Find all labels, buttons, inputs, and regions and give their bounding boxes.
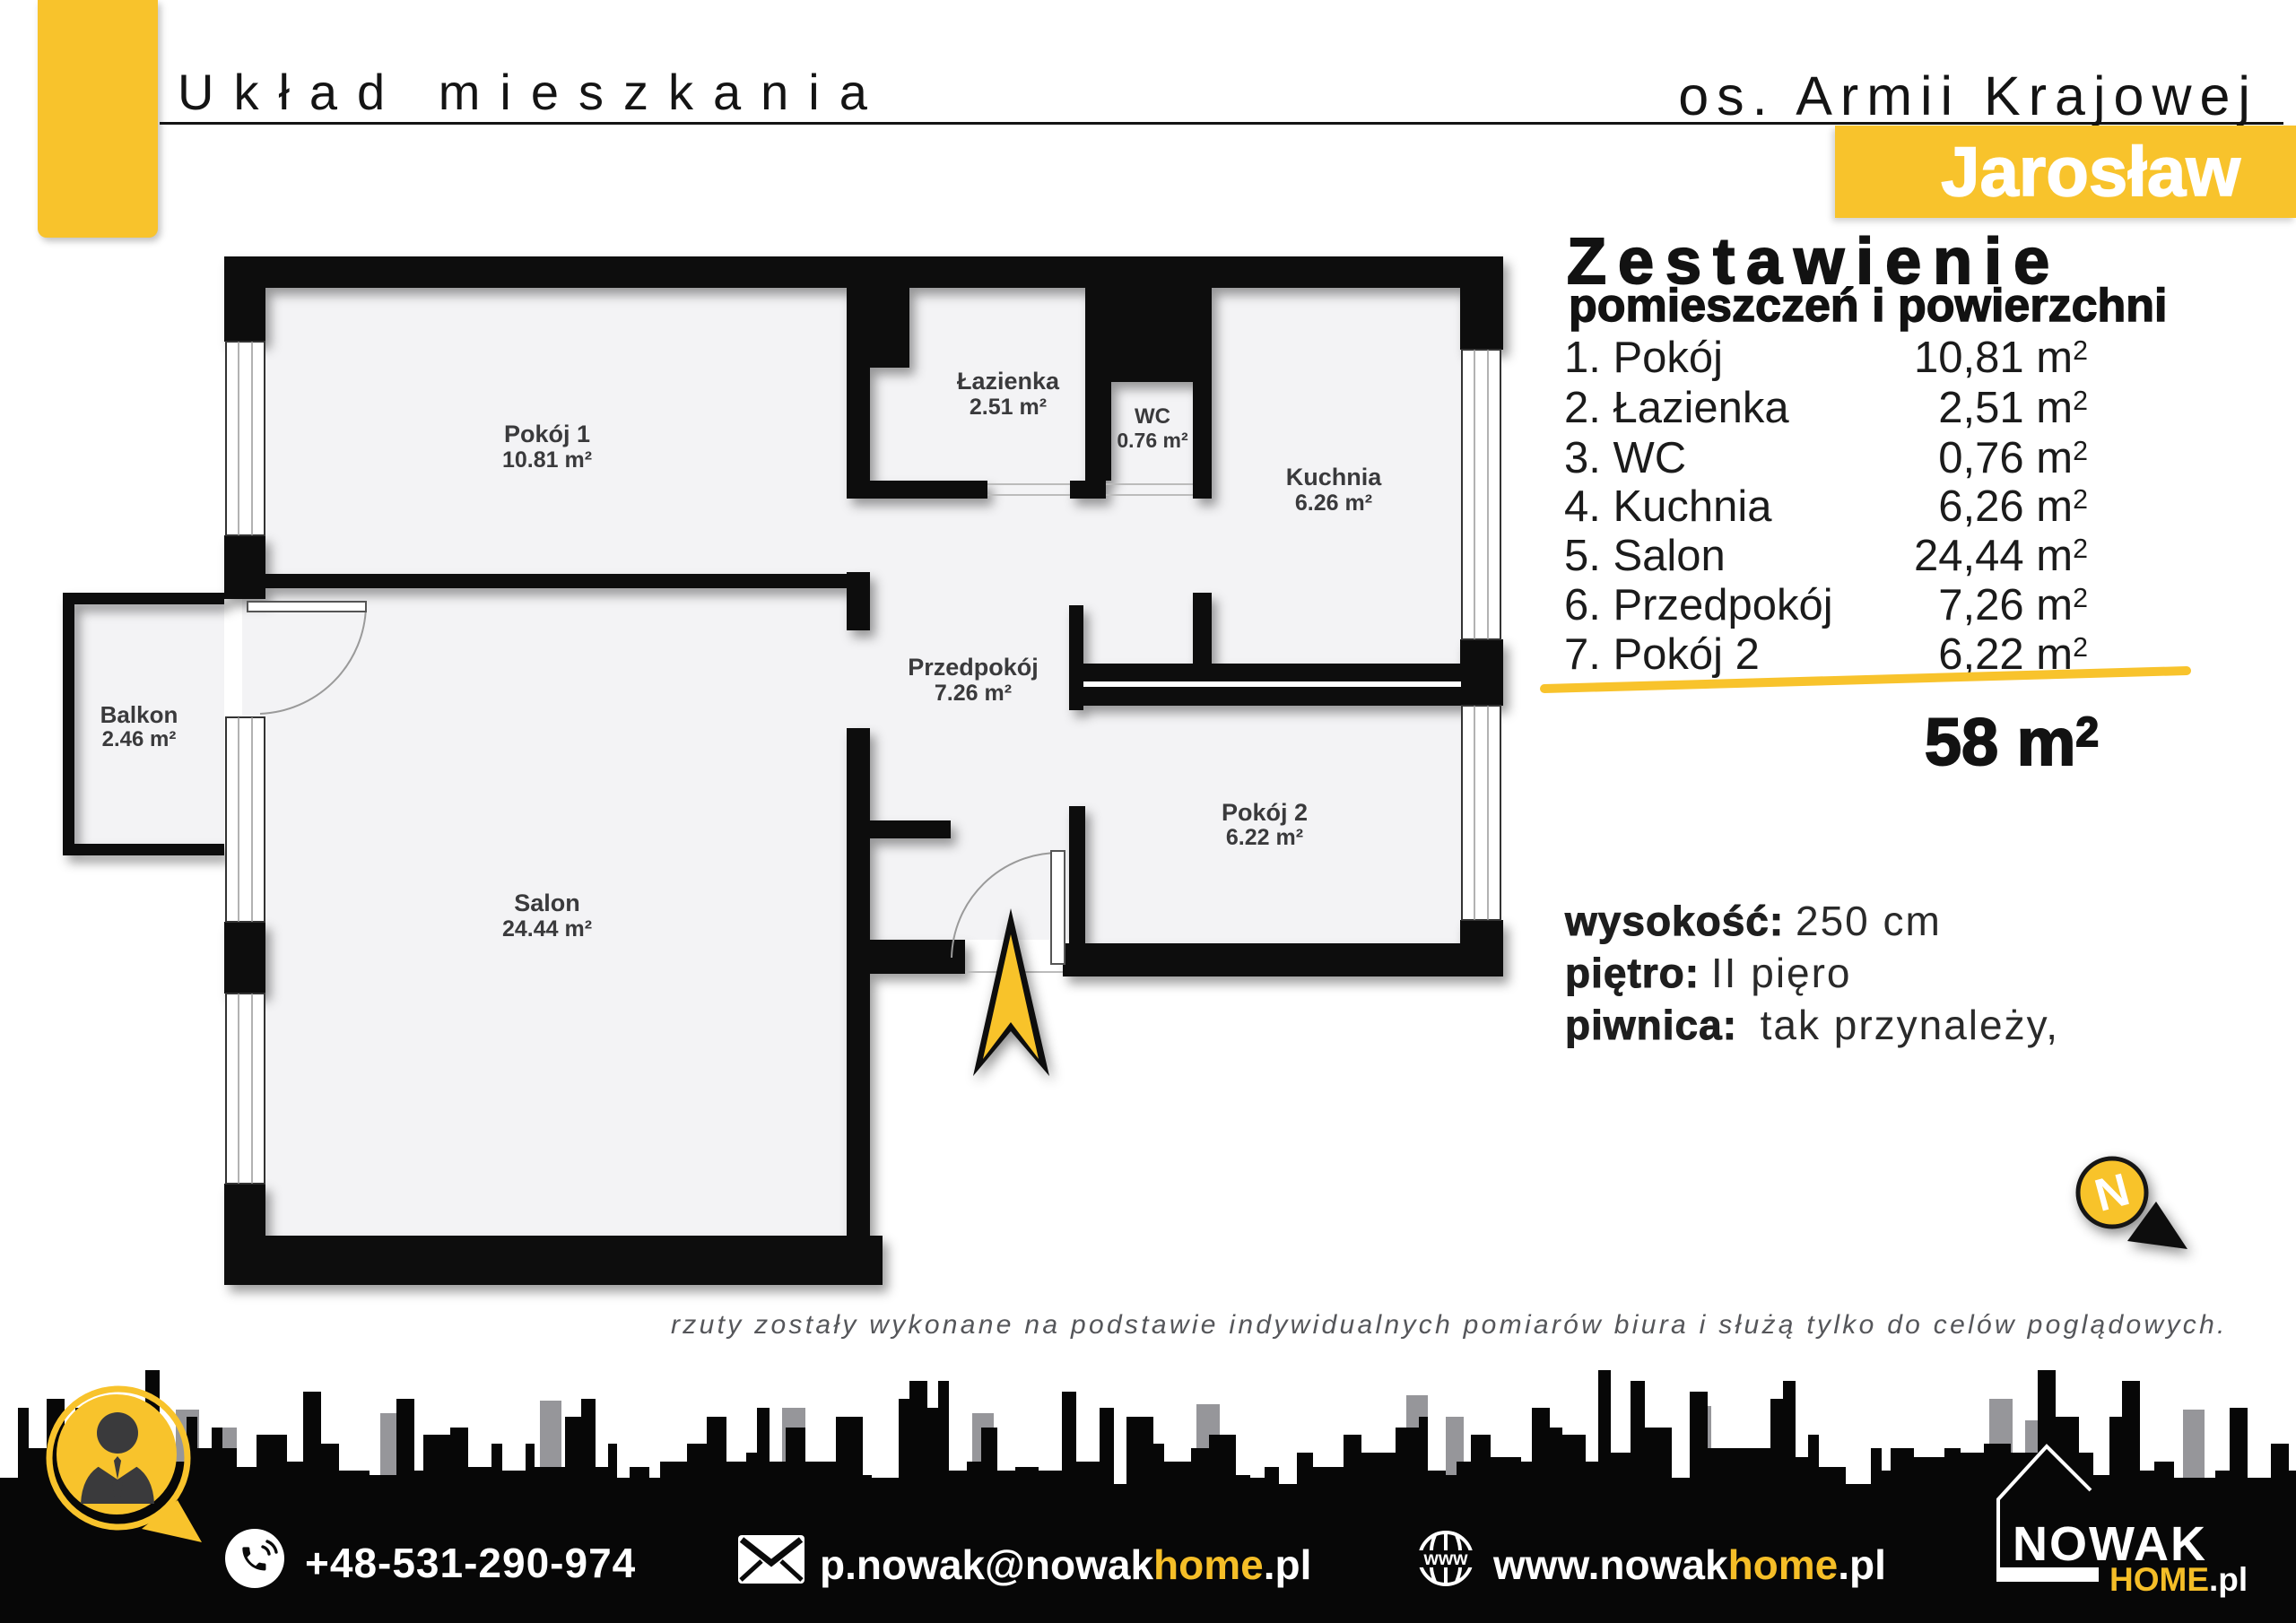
svg-text:Pokój 2: Pokój 2 (1222, 799, 1308, 826)
svg-text:0.76 m²: 0.76 m² (1117, 429, 1188, 452)
svg-text:Balkon: Balkon (100, 701, 178, 728)
svg-text:Pokój 1: Pokój 1 (504, 421, 590, 447)
svg-text:7.26 m²: 7.26 m² (935, 681, 1012, 706)
svg-text:6.26 m²: 6.26 m² (1295, 490, 1372, 516)
svg-text:WC: WC (1135, 404, 1170, 429)
svg-text:2.46 m²: 2.46 m² (102, 727, 177, 751)
svg-text:Kuchnia: Kuchnia (1286, 464, 1382, 490)
svg-text:2.51 m²: 2.51 m² (970, 395, 1047, 420)
svg-text:6.22 m²: 6.22 m² (1226, 825, 1303, 850)
svg-text:10.81 m²: 10.81 m² (502, 447, 592, 473)
svg-text:Przedpokój: Przedpokój (908, 654, 1039, 681)
svg-text:Łazienka: Łazienka (957, 368, 1060, 395)
svg-text:24.44 m²: 24.44 m² (502, 916, 592, 942)
svg-text:www: www (1422, 1549, 1468, 1569)
svg-text:Salon: Salon (514, 890, 580, 916)
